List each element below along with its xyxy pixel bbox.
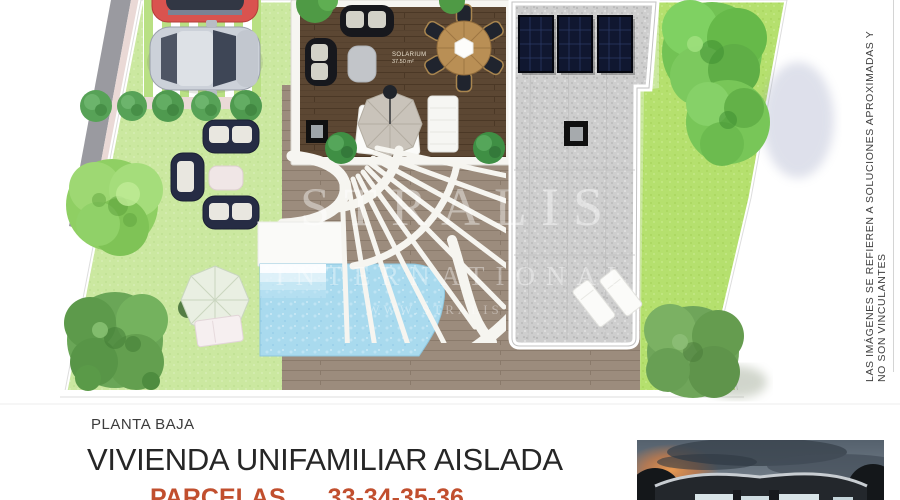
parcels-line: PARCELAS33-34-35-36 (150, 484, 464, 500)
pool-steps (260, 264, 326, 298)
swimming-pool (260, 264, 445, 356)
page: SOLARIUM 37.50 m² (0, 0, 900, 500)
page-title: VIVIENDA UNIFAMILIAR AISLADA (87, 442, 563, 478)
silver-car (147, 20, 263, 97)
solar-panels (519, 16, 635, 75)
parcels-numbers: 33-34-35-36 (328, 484, 464, 500)
solarium-area: 37.50 m² (392, 59, 414, 65)
vertical-divider (893, 0, 894, 372)
solarium-label: SOLARIUM (392, 52, 427, 58)
red-car (152, 0, 258, 22)
pool-patio (258, 222, 344, 266)
garden-tree-southwest (64, 292, 168, 391)
garden-tree-southeast (644, 304, 767, 398)
roof-deck-solarium: SOLARIUM 37.50 m² (291, 0, 513, 165)
parcels-label: PARCELAS (150, 484, 286, 500)
hedge-row (80, 90, 262, 122)
site-plan: SOLARIUM 37.50 m² (0, 0, 900, 405)
floor-label: PLANTA BAJA (91, 416, 195, 433)
coffee-table (348, 46, 376, 82)
image-disclaimer-vertical: LAS IMÁGENES SE REFIEREN A SOLUCIONES AP… (866, 0, 886, 382)
house-photo (637, 440, 884, 500)
